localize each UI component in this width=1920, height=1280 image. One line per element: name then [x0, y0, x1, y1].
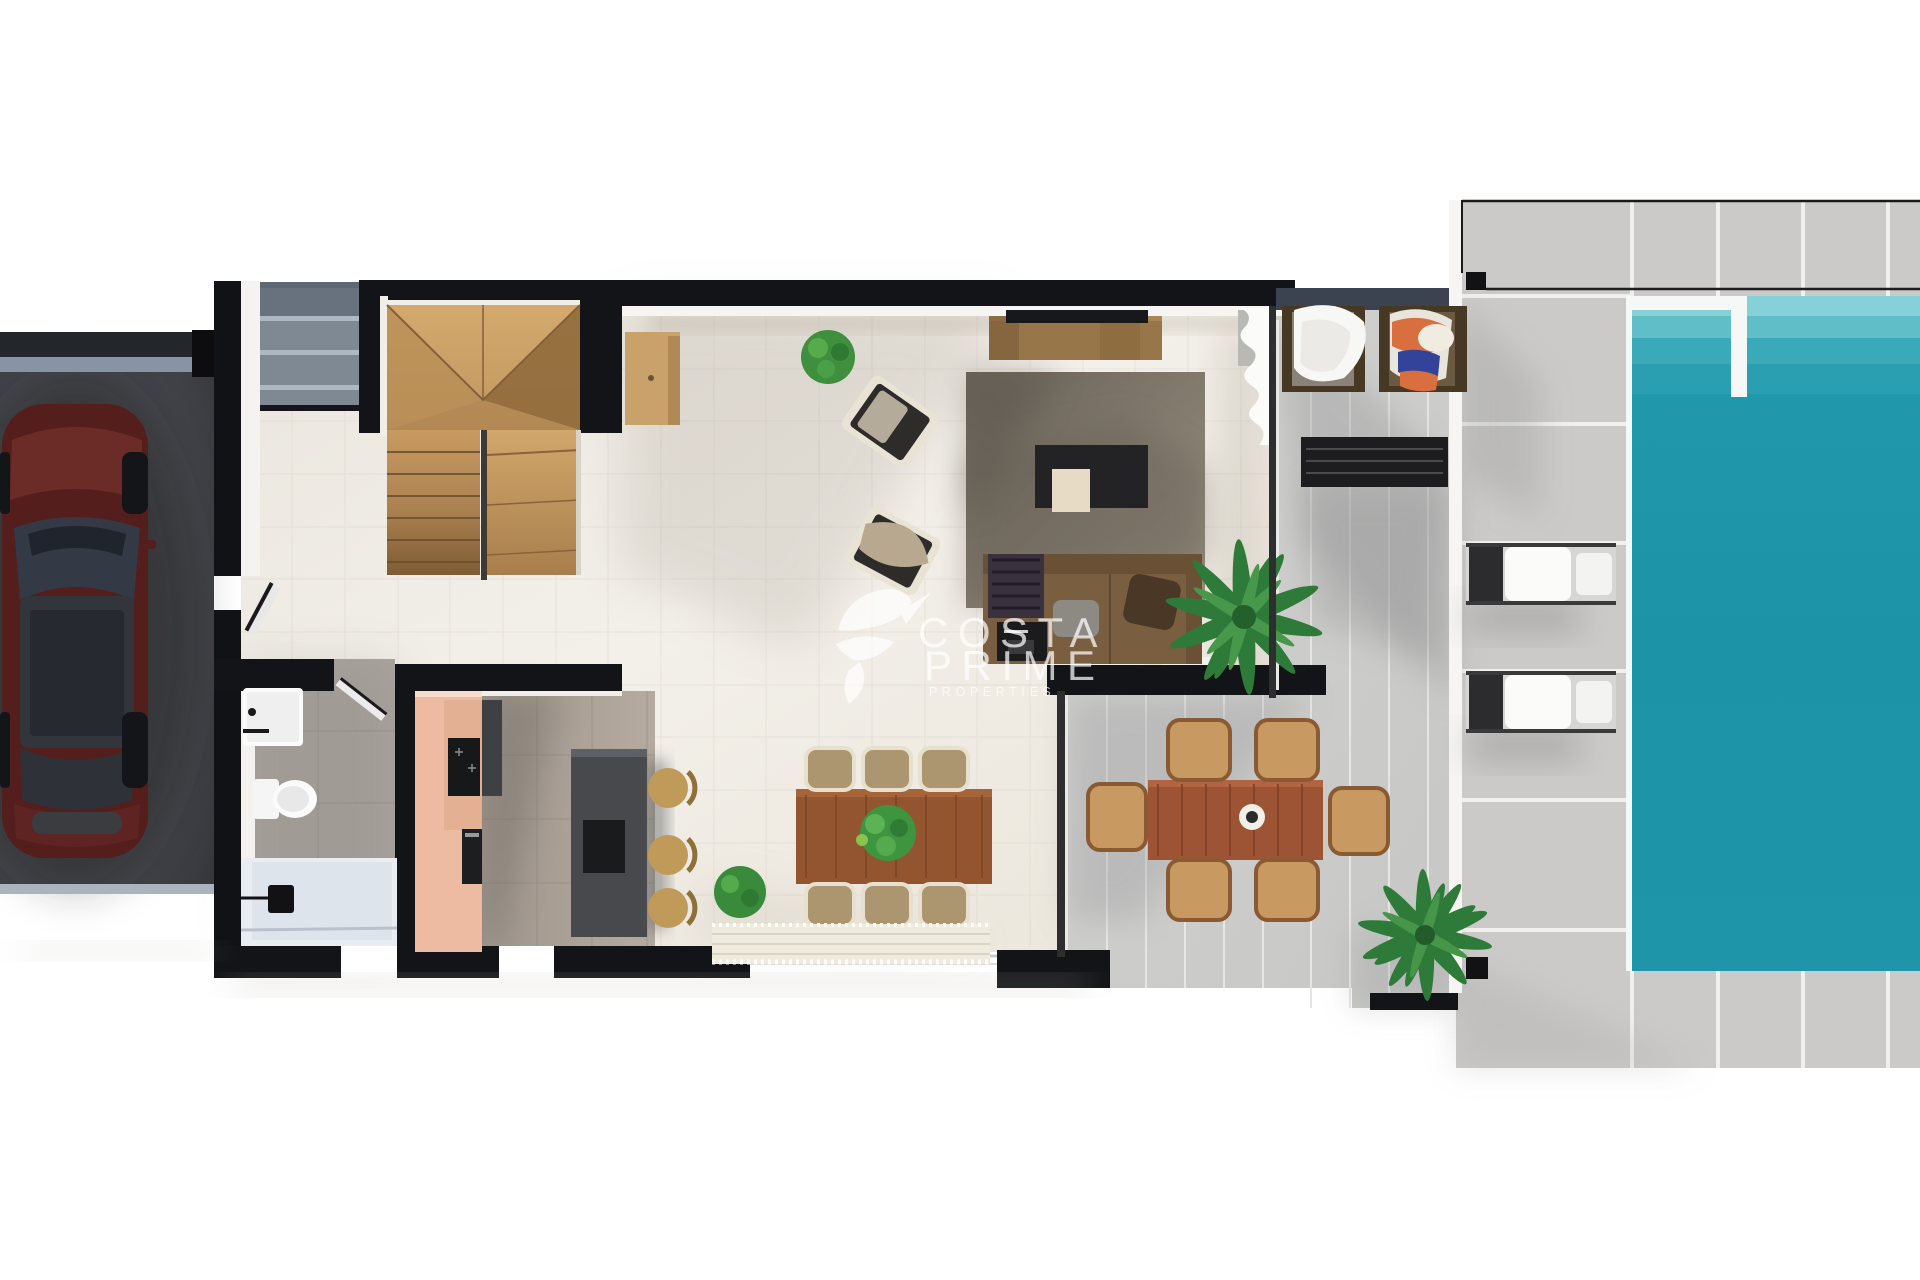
- svg-text:PROPERTIES: PROPERTIES: [929, 685, 1055, 699]
- svg-text:PRIME: PRIME: [924, 642, 1105, 689]
